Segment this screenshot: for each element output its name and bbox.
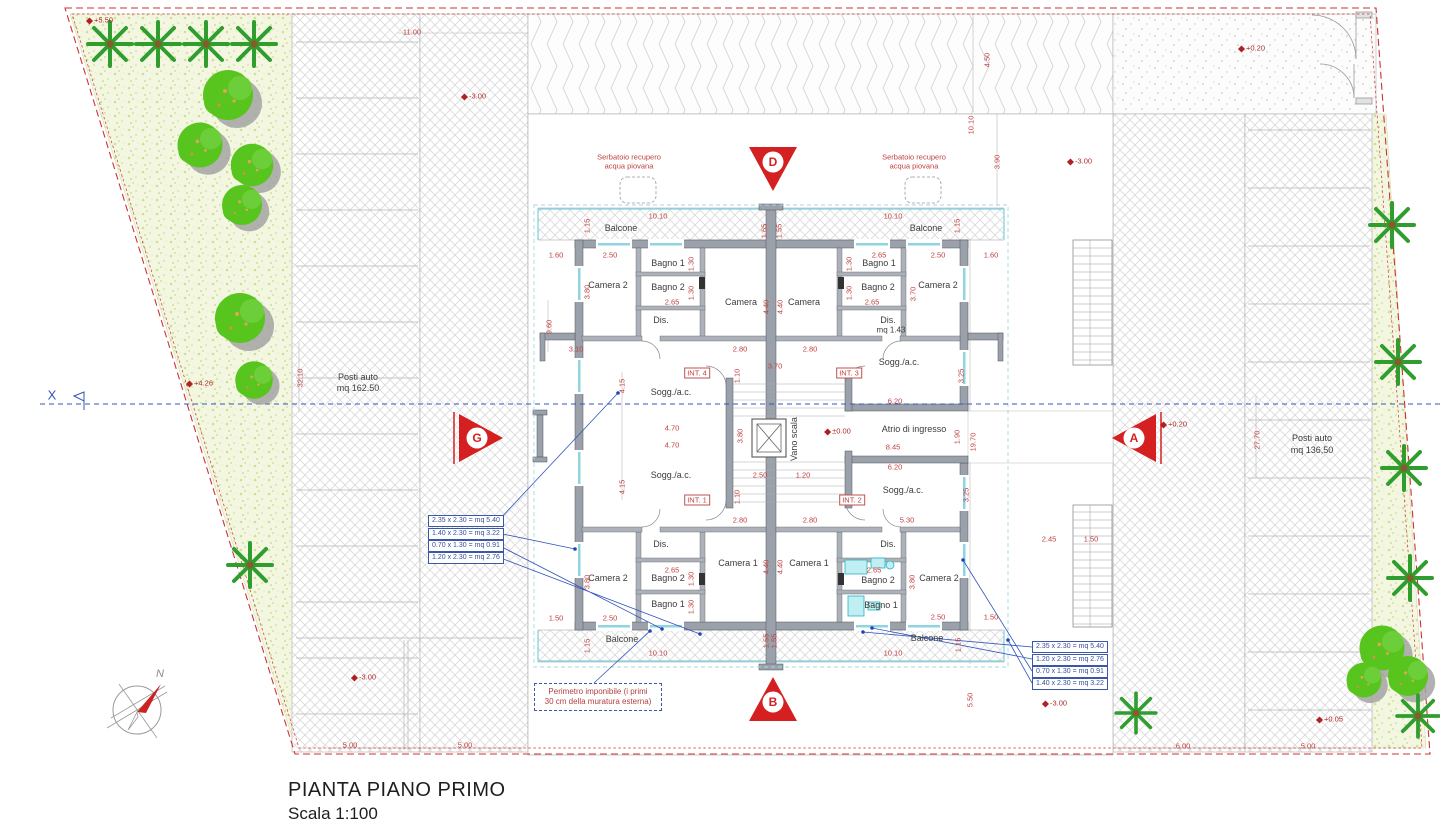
level-marker: +5.50 bbox=[87, 16, 113, 25]
dimension-label: 4.40 bbox=[776, 560, 785, 575]
dimension-label: 32.10 bbox=[296, 369, 305, 388]
room-label: Dis. bbox=[653, 539, 669, 549]
room-label: Camera bbox=[788, 297, 820, 307]
dimension-label: 1.30 bbox=[687, 600, 696, 615]
room-label: Balcone bbox=[605, 223, 638, 233]
room-label: Bagno 1 bbox=[651, 599, 685, 609]
dimension-label: 4.40 bbox=[776, 300, 785, 315]
dimension-label: 1.50 bbox=[984, 613, 999, 622]
room-label: Bagno 1 bbox=[864, 600, 898, 610]
dimension-label: 1.30 bbox=[687, 257, 696, 272]
room-label: Atrio di ingresso bbox=[882, 424, 947, 434]
level-marker: +0.20 bbox=[1239, 44, 1265, 53]
level-marker: ±0.00 bbox=[825, 427, 851, 436]
dimension-label: 10.10 bbox=[884, 212, 903, 221]
dimension-label: 10.10 bbox=[967, 116, 976, 135]
dimension-label: 2.80 bbox=[803, 345, 818, 354]
room-label: Vano scala bbox=[789, 417, 799, 461]
dimension-label: 3.80 bbox=[583, 575, 592, 590]
room-label: Sogg./a.c. bbox=[883, 485, 924, 495]
room-label: Sogg./a.c. bbox=[879, 357, 920, 367]
section-letter-b: B bbox=[769, 695, 778, 709]
dimension-label: 4.40 bbox=[762, 300, 771, 315]
dimension-label: 1.30 bbox=[845, 257, 854, 272]
level-marker: +4.26 bbox=[187, 379, 213, 388]
perimeter-note-line1: Perimetro imponibile (i primi bbox=[537, 687, 659, 697]
dimension-label: 6.20 bbox=[888, 463, 903, 472]
dimension-label: 2.80 bbox=[733, 345, 748, 354]
dimension-label: 3.10 bbox=[569, 345, 584, 354]
dimension-label: 10.10 bbox=[884, 649, 903, 658]
section-letter-a: A bbox=[1130, 431, 1139, 445]
dimension-label: 9.60 bbox=[545, 320, 554, 335]
compass-north-label: N bbox=[156, 668, 164, 680]
unit-label: INT. 1 bbox=[684, 495, 710, 506]
dimension-label: 3.80 bbox=[908, 575, 917, 590]
room-label: Balcone bbox=[606, 634, 639, 644]
area-annotation-box: 0.70 x 1.30 = mq 0.91 bbox=[428, 540, 504, 552]
dimension-label: 2.50 bbox=[931, 251, 946, 260]
dimension-label: 2.65 bbox=[867, 566, 882, 575]
dimension-label: 5.00 bbox=[1301, 742, 1316, 751]
level-marker: -3.00 bbox=[1068, 157, 1092, 166]
dimension-label: 1.10 bbox=[733, 490, 742, 505]
dimension-label: 1.15 bbox=[583, 219, 592, 234]
dimension-label: 3.70 bbox=[909, 287, 918, 302]
area-annotation-box: 2.35 x 2.30 = mq 5.40 bbox=[1032, 641, 1108, 653]
dimension-label: 3.25 bbox=[962, 488, 971, 503]
dimension-label: 1.50 bbox=[1084, 535, 1099, 544]
dimension-label: 1.15 bbox=[953, 219, 962, 234]
dimension-label: 10.10 bbox=[649, 212, 668, 221]
dimension-label: 5.00 bbox=[343, 741, 358, 750]
section-letter-d: D bbox=[769, 155, 778, 169]
parking-label: Posti auto bbox=[338, 372, 378, 382]
dimension-label: 2.50 bbox=[603, 251, 618, 260]
dimension-label: 8.45 bbox=[886, 443, 901, 452]
room-label: Bagno 2 bbox=[651, 573, 685, 583]
room-label: Camera 1 bbox=[718, 558, 758, 568]
dimension-label: 1.15 bbox=[954, 638, 963, 653]
labels-layer: +5.5011.00-3.00+0.204.5010.103.90-3.00+4… bbox=[0, 0, 1440, 838]
room-label: mq 1.43 bbox=[877, 326, 906, 335]
dimension-label: 27.70 bbox=[1253, 431, 1262, 450]
room-label: Dis. bbox=[653, 315, 669, 325]
room-label: Bagno 1 bbox=[862, 258, 896, 268]
unit-label: INT. 4 bbox=[684, 368, 710, 379]
drawing-scale: Scala 1:100 bbox=[288, 804, 506, 824]
floor-plan-canvas: +5.5011.00-3.00+0.204.5010.103.90-3.00+4… bbox=[0, 0, 1440, 838]
unit-label: INT. 3 bbox=[836, 368, 862, 379]
drawing-title: PIANTA PIANO PRIMO bbox=[288, 779, 506, 802]
room-label: Bagno 2 bbox=[861, 282, 895, 292]
room-label: Balcone bbox=[911, 633, 944, 643]
dimension-label: 2.45 bbox=[1042, 535, 1057, 544]
area-annotation-box: 1.20 x 2.30 = mq 2.76 bbox=[428, 552, 504, 564]
tank-label: acqua piovana bbox=[890, 162, 939, 171]
dimension-label: 1.50 bbox=[549, 614, 564, 623]
dimension-label: 3.80 bbox=[736, 429, 745, 444]
room-label: Camera 1 bbox=[789, 558, 829, 568]
dimension-label: 1.15 bbox=[583, 639, 592, 654]
dimension-label: 5.30 bbox=[900, 516, 915, 525]
area-annotation-box: 2.35 x 2.30 = mq 5.40 bbox=[428, 515, 504, 527]
room-label: Bagno 1 bbox=[651, 258, 685, 268]
dimension-label: 6.20 bbox=[888, 397, 903, 406]
area-annotation-box: 0.70 x 1.30 = mq 0.91 bbox=[1032, 666, 1108, 678]
title-block: PIANTA PIANO PRIMO Scala 1:100 bbox=[288, 779, 506, 824]
dimension-label: 1.65 bbox=[760, 224, 769, 239]
dimension-label: 1.60 bbox=[984, 251, 999, 260]
dimension-label: 6.00 bbox=[1176, 742, 1191, 751]
dimension-label: 1.30 bbox=[845, 286, 854, 301]
level-marker: -3.00 bbox=[462, 92, 486, 101]
axis-x-label: X bbox=[48, 388, 57, 403]
parking-label: mq 162.50 bbox=[337, 383, 380, 393]
dimension-label: 2.65 bbox=[665, 298, 680, 307]
parking-label: Posti auto bbox=[1292, 433, 1332, 443]
room-label: Bagno 2 bbox=[651, 282, 685, 292]
dimension-label: 3.25 bbox=[957, 369, 966, 384]
room-label: Camera bbox=[725, 297, 757, 307]
room-label: Camera 2 bbox=[918, 280, 958, 290]
dimension-label: 4.70 bbox=[665, 441, 680, 450]
dimension-label: 2.65 bbox=[865, 298, 880, 307]
dimension-label: 5.50 bbox=[966, 693, 975, 708]
dimension-label: 1.30 bbox=[687, 286, 696, 301]
tank-label: acqua piovana bbox=[605, 162, 654, 171]
unit-label: INT. 2 bbox=[839, 495, 865, 506]
dimension-label: 10.10 bbox=[649, 649, 668, 658]
dimension-label: 1.10 bbox=[733, 369, 742, 384]
section-letter-g: G bbox=[472, 431, 481, 445]
level-marker: +0.05 bbox=[1317, 715, 1343, 724]
area-annotation-box: 1.40 x 2.30 = mq 3.22 bbox=[428, 528, 504, 540]
dimension-label: 3.70 bbox=[768, 362, 783, 371]
dimension-label: 4.50 bbox=[983, 53, 992, 68]
dimension-label: 1.20 bbox=[796, 471, 811, 480]
room-label: Camera 2 bbox=[588, 573, 628, 583]
perimeter-note-line2: 30 cm della muratura esterna) bbox=[537, 697, 659, 707]
perimeter-note: Perimetro imponibile (i primi 30 cm dell… bbox=[534, 683, 662, 711]
dimension-label: 1.55 bbox=[770, 634, 779, 649]
room-label: Dis. bbox=[880, 539, 896, 549]
dimension-label: 2.50 bbox=[603, 614, 618, 623]
dimension-label: 4.70 bbox=[665, 424, 680, 433]
dimension-label: 2.80 bbox=[733, 516, 748, 525]
level-marker: +0.20 bbox=[1161, 420, 1187, 429]
room-label: Sogg./a.c. bbox=[651, 470, 692, 480]
room-label: Sogg./a.c. bbox=[651, 387, 692, 397]
room-label: Dis. bbox=[880, 315, 896, 325]
room-label: Bagno 2 bbox=[861, 575, 895, 585]
dimension-label: 1.60 bbox=[549, 251, 564, 260]
dimension-label: 4.15 bbox=[618, 379, 627, 394]
dimension-label: 3.90 bbox=[993, 155, 1002, 170]
dimension-label: 4.40 bbox=[762, 560, 771, 575]
dimension-label: 5.00 bbox=[458, 741, 473, 750]
area-annotation-box: 1.40 x 2.30 = mq 3.22 bbox=[1032, 678, 1108, 690]
level-marker: -3.00 bbox=[352, 673, 376, 682]
room-label: Camera 2 bbox=[919, 573, 959, 583]
dimension-label: 1.90 bbox=[953, 430, 962, 445]
tank-label: Serbatoio recupero bbox=[597, 153, 661, 162]
dimension-label: 1.30 bbox=[687, 572, 696, 587]
room-label: Camera 2 bbox=[588, 280, 628, 290]
parking-label: mq 136,50 bbox=[1291, 445, 1334, 455]
room-label: Balcone bbox=[910, 223, 943, 233]
dimension-label: 1.55 bbox=[775, 224, 784, 239]
area-annotation-box: 1.20 x 2.30 = mq 2.76 bbox=[1032, 654, 1108, 666]
dimension-label: 19.70 bbox=[969, 433, 978, 452]
level-marker: -3.00 bbox=[1043, 699, 1067, 708]
dimension-label: 3.80 bbox=[583, 285, 592, 300]
tank-label: Serbatoio recupero bbox=[882, 153, 946, 162]
dimension-label: 4.15 bbox=[618, 480, 627, 495]
dimension-label: 2.50 bbox=[931, 613, 946, 622]
dimension-label: 2.50 bbox=[753, 471, 768, 480]
dimension-label: 11.00 bbox=[403, 28, 421, 37]
dimension-label: 2.80 bbox=[803, 516, 818, 525]
